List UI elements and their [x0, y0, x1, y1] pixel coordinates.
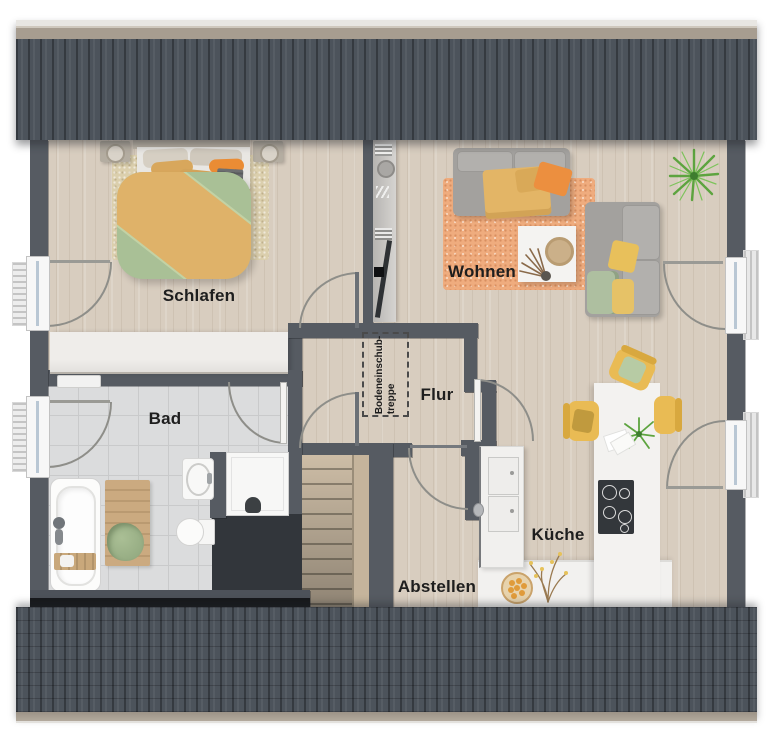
shower-tray	[226, 452, 289, 516]
exterior-wall-right	[727, 332, 745, 420]
bath-caddy	[54, 553, 96, 570]
room-label-kueche: Küche	[498, 525, 618, 545]
decor-branch-icon	[526, 544, 570, 604]
palm-plant-icon	[666, 146, 722, 204]
shower-fixture-icon	[245, 497, 261, 513]
chair-back	[675, 398, 682, 432]
books-stack	[375, 228, 392, 240]
bathtub	[50, 478, 101, 592]
bedside-lamp-icon	[260, 144, 279, 163]
chair-back	[563, 403, 570, 439]
exterior-wall-left	[30, 140, 48, 256]
roof-tiles	[16, 607, 757, 712]
burner-icon	[619, 488, 630, 499]
toilet	[176, 517, 214, 545]
duvet	[117, 172, 251, 279]
exterior-wall-right	[727, 140, 745, 257]
towel-green	[107, 523, 144, 561]
roof-eave	[16, 712, 757, 721]
duvet-yellow-throw	[117, 172, 251, 279]
roof-ridge	[16, 26, 757, 39]
floorplan-canvas: Schlafen Wohnen	[0, 0, 775, 747]
window-leaf	[47, 400, 110, 403]
door-leaf	[474, 379, 481, 442]
room-label-wohnen: Wohnen	[422, 262, 542, 282]
toilet-bowl	[176, 518, 204, 546]
door-leaf	[355, 392, 359, 446]
burner-icon	[620, 524, 629, 533]
room-label-flur: Flur	[387, 385, 487, 405]
towel-rail	[57, 375, 101, 388]
staircase	[302, 455, 352, 607]
window-leaf	[666, 486, 723, 489]
window	[26, 396, 50, 478]
tap-icon	[207, 473, 212, 484]
bath-faucet-icon	[53, 517, 65, 529]
room-label-schlafen: Schlafen	[139, 286, 259, 306]
door-leaf	[355, 272, 359, 328]
window	[725, 257, 747, 334]
chair-cushion	[571, 408, 595, 433]
exterior-wall-left	[30, 328, 48, 396]
wardrobe	[50, 332, 288, 374]
towel-roll	[60, 555, 74, 567]
window	[725, 420, 747, 490]
door-leaf	[410, 445, 467, 448]
tv-wall	[363, 140, 373, 323]
throw-blanket	[612, 279, 634, 314]
decor-items	[376, 186, 389, 198]
roof-bottom	[16, 607, 757, 723]
window	[26, 256, 50, 331]
exterior-wall-right	[727, 488, 745, 612]
roof-tiles	[16, 39, 757, 140]
stair-stringer	[352, 455, 369, 607]
burner-icon	[602, 485, 617, 500]
dining-chair	[563, 401, 599, 441]
roof-top	[16, 20, 757, 140]
washbasin	[182, 458, 214, 500]
dining-chair	[654, 396, 682, 434]
knob-icon	[510, 471, 514, 475]
window-leaf	[47, 260, 110, 263]
cabinet-panel	[488, 457, 519, 495]
bedside-lamp-icon	[106, 144, 125, 163]
bath-faucet-icon	[55, 529, 63, 545]
window-leaf	[663, 261, 723, 264]
tv-box	[374, 267, 384, 277]
door-handle-icon	[473, 503, 484, 517]
speaker-icon	[377, 160, 395, 178]
chair-seat	[654, 396, 677, 434]
room-label-bad: Bad	[115, 409, 215, 429]
tall-cabinet-door	[479, 446, 524, 568]
burner-icon	[603, 506, 616, 519]
door-leaf	[280, 382, 287, 444]
knob-icon	[510, 509, 514, 513]
books-stack	[375, 144, 392, 156]
burner-icon	[618, 510, 632, 524]
